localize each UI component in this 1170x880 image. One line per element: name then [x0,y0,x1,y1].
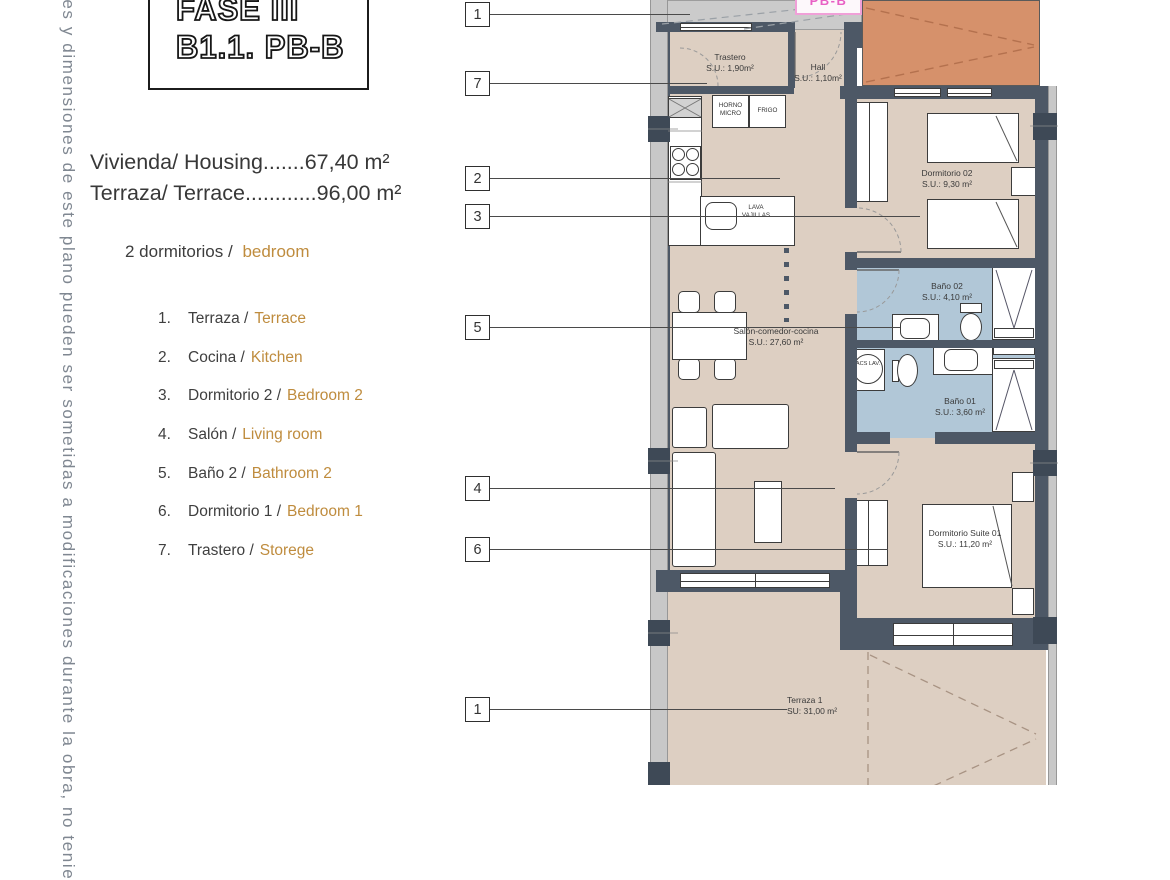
callout-1-top: 1 [465,2,490,27]
leader-line-4 [490,488,835,489]
summary-en: bedroom [242,242,309,261]
dotted-divider [784,248,789,322]
armchair [672,407,707,448]
pillar [1033,113,1057,140]
callout-4: 4 [465,476,490,501]
legend-es: Salón / [188,426,236,443]
wall-bano01-suite-a [845,432,890,444]
title-block: FASE III B1.1. PB-B [148,0,369,90]
burner [672,163,685,176]
room-label-terraza: Terraza 1SU: 31,00 m² [787,695,877,717]
room-label-bano01: Baño 01S.U.: 3,60 m² [915,396,1005,418]
floor-plan: HORNO MICRO FRIGO LAVA VAJILLAS ACS LAV. [648,0,1060,785]
shower-tray-bano01 [994,360,1034,369]
wall-entry-pillar [844,22,862,48]
legend-es: Dormitorio 1 / [188,503,281,520]
fridge-label: FRIGO [751,107,784,115]
legend-es: Baño 2 / [188,465,246,482]
legend-en: Kitchen [251,349,303,366]
margin-disclaimer-text: ies y dimensiones de este plano pueden s… [48,0,78,794]
legend-num: 6. [158,503,182,520]
leader-line-7 [490,83,707,84]
sink-bano02 [900,318,930,339]
legend-en: Terrace [254,310,306,327]
wall-bano02-bano01 [857,340,1040,348]
pillar [1033,450,1057,476]
leader-line-1-bottom [490,709,787,710]
callout-5: 5 [465,315,490,340]
pillar [648,762,670,785]
pillar [648,448,670,474]
upper-terrace-roof [862,0,1040,86]
room-label-hall: HallS.U.: 1,10m² [783,62,853,84]
legend-item-salon: 4. Salón / Living room [158,426,363,443]
leader-line-3 [490,216,920,217]
room-label-salon: Salón-comedor-cocinaS.U.: 27,60 m² [715,326,837,348]
legend-es: Cocina / [188,349,245,366]
bedroom-summary: 2 dormitorios / bedroom [125,242,310,262]
legend-num: 2. [158,349,182,366]
legend-num: 1. [158,310,182,327]
legend-en: Storege [260,542,314,559]
chair [678,358,700,380]
toilet-bano02 [960,313,982,341]
bed-single-2 [927,199,1019,249]
wall-top-right [840,86,1048,99]
coffee-table [754,481,782,543]
legend-en: Bathroom 2 [252,465,332,482]
oven-microwave: HORNO MICRO [712,95,749,128]
title-unit: B1.1. PB-B [176,28,367,68]
callout-6: 6 [465,537,490,562]
wall-center-a [845,95,857,208]
leader-line-5 [490,327,900,328]
legend-en: Bedroom 1 [287,503,363,520]
legend-es: Terraza / [188,310,248,327]
legend-num: 3. [158,387,182,404]
callout-7: 7 [465,71,490,96]
pillar [1033,617,1057,644]
burner [672,148,685,161]
wall-trastero-bottom [668,86,794,94]
right-boundary-strip [1048,86,1057,785]
nightstand-suite-1 [1012,472,1034,502]
burner [686,163,699,176]
legend-num: 7. [158,542,182,559]
housing-area-line: Vivienda/ Housing.......67,40 m² [90,147,401,178]
terrace-area-line: Terraza/ Terrace............96,00 m² [90,178,401,209]
legend-en: Living room [242,426,322,443]
chair [714,291,736,313]
dishwasher-label: LAVA VAJILLAS [738,204,774,220]
chair [678,291,700,313]
loveseat [712,404,789,449]
room-legend: 1. Terraza / Terrace 2. Cocina / Kitchen… [158,310,363,581]
wall-center-d [845,498,857,570]
window-dorm02-b [947,88,992,97]
shower-tray-bano02 [994,328,1034,338]
callout-3: 3 [465,204,490,229]
nightstand-dorm02 [1011,167,1038,196]
pillar [648,620,670,646]
vent-shaft [668,98,702,118]
surface-areas: Vivienda/ Housing.......67,40 m² Terraza… [90,147,401,209]
wall-dorm02-bano02 [845,258,1040,268]
oven-microwave-label: HORNO MICRO [714,102,747,118]
room-label-suite: Dormitorio Suite 01S.U.: 11,20 m² [910,528,1020,550]
legend-item-terraza: 1. Terraza / Terrace [158,310,363,327]
legend-item-dormitorio2: 3. Dormitorio 2 / Bedroom 2 [158,387,363,404]
callout-1-bottom: 1 [465,697,490,722]
room-label-dorm02: Dormitorio 02S.U.: 9,30 m² [902,168,992,190]
room-label-bano02: Baño 02S.U.: 4,10 m² [902,281,992,303]
sink-bano01 [944,349,978,371]
shower-bano01 [992,358,1036,432]
fridge: FRIGO [749,95,786,128]
leader-line-6 [490,549,888,550]
burner [686,148,699,161]
legend-num: 4. [158,426,182,443]
legend-es: Trastero / [188,542,254,559]
legend-es: Dormitorio 2 / [188,387,281,404]
chair [714,358,736,380]
toilet-tank-bano02 [960,303,982,313]
window-trastero [680,23,752,31]
room-label-trastero: TrasteroS.U.: 1,90m² [680,52,780,74]
acs-label: ACS LAV. [853,361,883,368]
legend-item-dormitorio1: 6. Dormitorio 1 / Bedroom 1 [158,503,363,520]
wall-right-outer [1035,86,1048,650]
window-dorm02-a [894,88,941,97]
sliding-door-living [680,573,830,588]
pillar [648,116,670,142]
nightstand-suite-2 [1012,588,1034,615]
bed-single-1 [927,113,1019,163]
callout-2: 2 [465,166,490,191]
summary-es: 2 dormitorios / [125,242,233,261]
legend-num: 5. [158,465,182,482]
wall-bano01-suite-b [935,432,1040,444]
window-suite [893,623,1013,646]
sheet-tag: PB-B [795,0,862,15]
title-phase: FASE III [176,0,367,30]
legend-item-bano2: 5. Baño 2 / Bathroom 2 [158,465,363,482]
leader-line-2 [490,178,780,179]
leader-line-1-top [490,14,690,15]
legend-item-cocina: 2. Cocina / Kitchen [158,349,363,366]
toilet-bano01 [897,354,918,387]
legend-item-trastero: 7. Trastero / Storege [158,542,363,559]
legend-en: Bedroom 2 [287,387,363,404]
